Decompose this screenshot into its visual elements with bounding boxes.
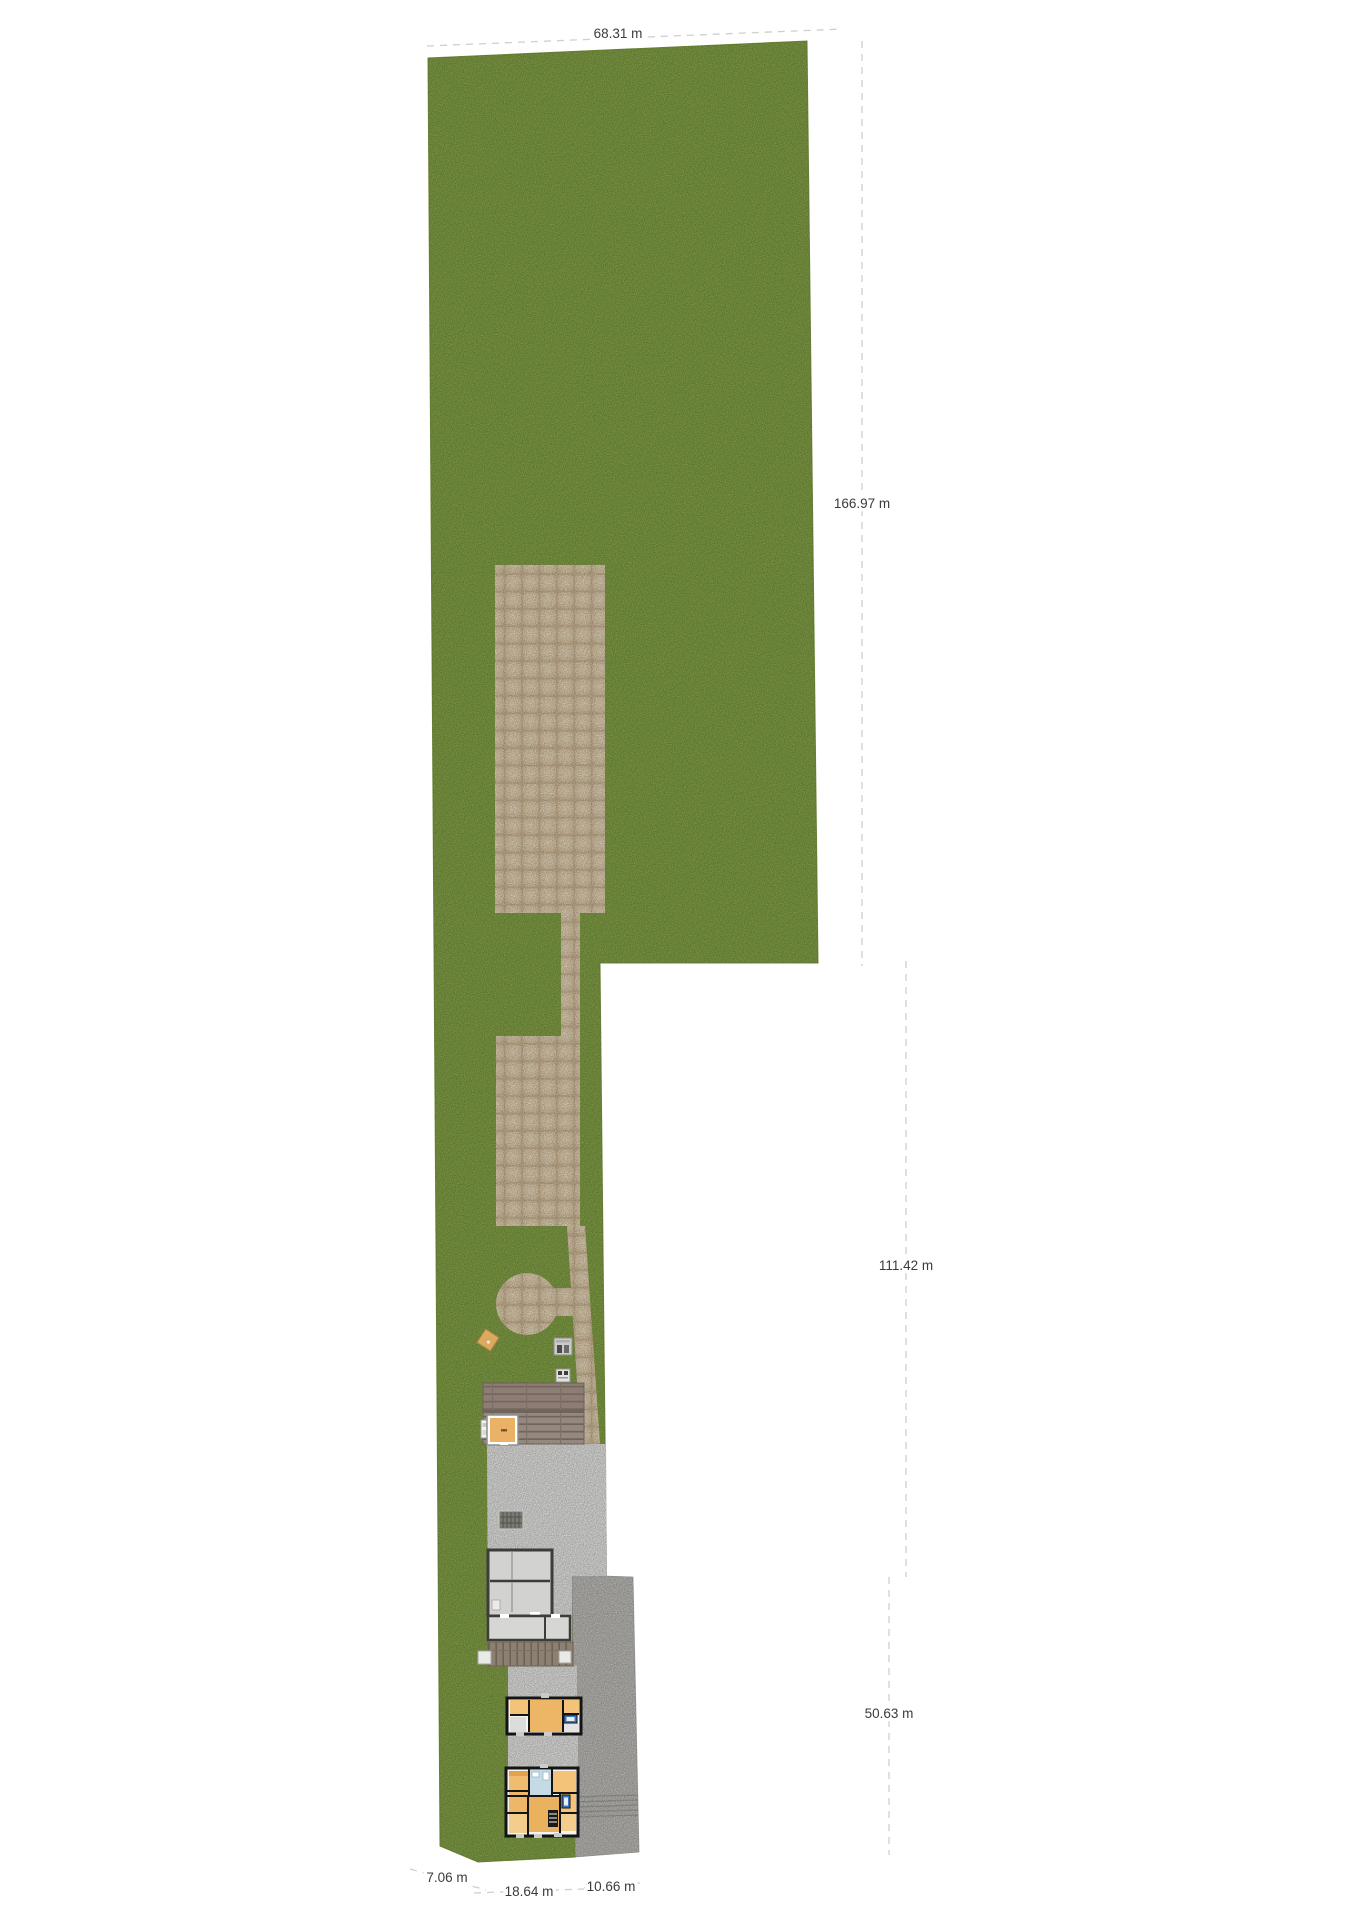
deck-post-left bbox=[478, 1651, 491, 1664]
dimension-label-top-width: 68.31 m bbox=[594, 26, 643, 41]
wooden-deck bbox=[478, 1642, 573, 1666]
stairs bbox=[548, 1810, 558, 1827]
dimension-label-bottom-center: 18.64 m bbox=[505, 1884, 554, 1899]
site-plan-canvas: 68.31 m 166.97 m 111.42 m 50.63 m 7.06 m… bbox=[0, 0, 1358, 1920]
dimension-label-bottom-left: 7.06 m bbox=[426, 1870, 467, 1885]
main-house-floorplan bbox=[506, 1764, 578, 1838]
dimension-label-right-lower: 50.63 m bbox=[865, 1706, 914, 1721]
upper-house-floorplan bbox=[507, 1693, 581, 1736]
dimension-label-right-upper: 166.97 m bbox=[834, 496, 890, 511]
drain-grate bbox=[499, 1511, 523, 1529]
barn-floorplan bbox=[488, 1550, 552, 1617]
outbuilding-floorplan bbox=[488, 1614, 570, 1640]
utility-unit-2 bbox=[556, 1369, 570, 1382]
utility-unit bbox=[554, 1338, 572, 1355]
site-plan-page: 68.31 m 166.97 m 111.42 m 50.63 m 7.06 m… bbox=[0, 0, 1358, 1920]
garden-house bbox=[481, 1415, 518, 1445]
deck-post-right bbox=[559, 1651, 571, 1663]
dimension-label-right-middle: 111.42 m bbox=[879, 1258, 933, 1273]
dimension-label-bottom-right: 10.66 m bbox=[587, 1879, 636, 1894]
door-step bbox=[541, 1693, 549, 1698]
